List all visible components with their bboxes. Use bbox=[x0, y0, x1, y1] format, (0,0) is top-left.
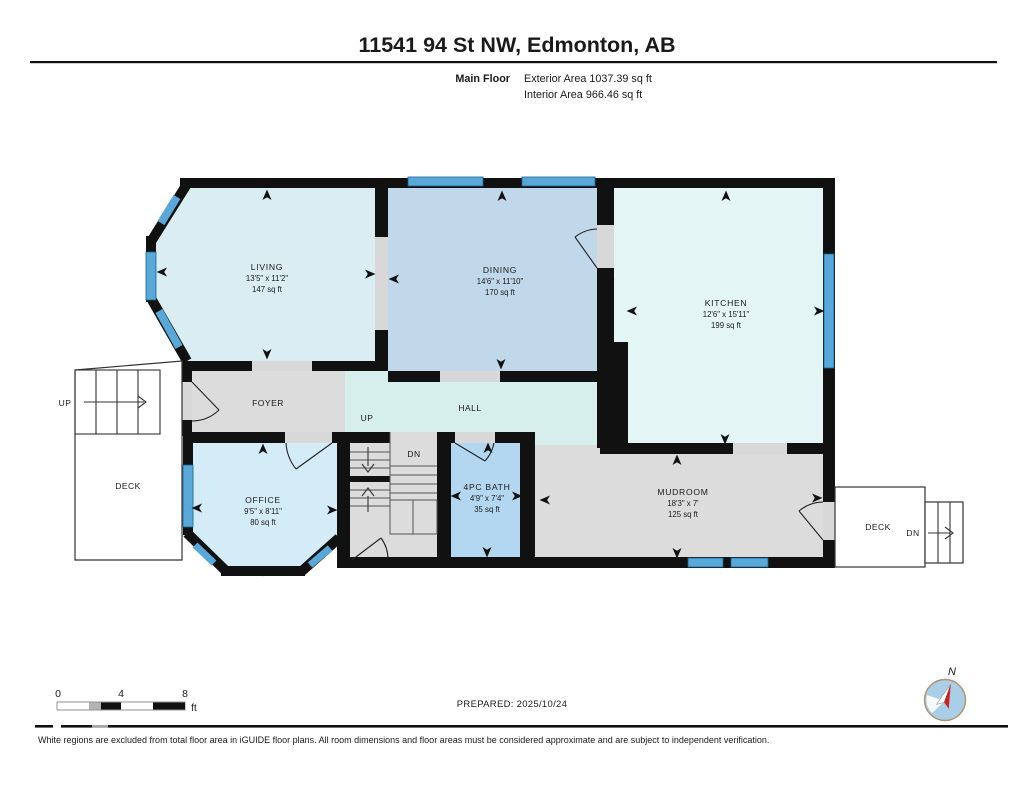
kitchen-dims: 12'6" x 15'11" bbox=[703, 310, 750, 319]
office-dims: 9'5" x 8'11" bbox=[244, 507, 282, 516]
exterior-area: Exterior Area 1037.39 sq ft bbox=[524, 73, 652, 85]
deck-right bbox=[835, 487, 963, 567]
dining-area: 170 sq ft bbox=[485, 288, 516, 297]
floor-label: Main Floor bbox=[455, 73, 510, 85]
living-dims: 13'5" x 11'2" bbox=[246, 274, 288, 283]
deck-left-label: DECK bbox=[115, 481, 141, 491]
header: 11541 94 St NW, Edmonton, AB Main Floor … bbox=[30, 33, 997, 101]
hall-up-label: UP bbox=[361, 413, 374, 423]
scale-tick-4: 4 bbox=[118, 688, 124, 700]
floorplan-canvas: 11541 94 St NW, Edmonton, AB Main Floor … bbox=[0, 0, 1024, 791]
deck-left-up-label: UP bbox=[59, 398, 72, 408]
kitchen-window bbox=[824, 254, 834, 368]
mudroom-label: MUDROOM bbox=[657, 487, 708, 497]
dining-label: DINING bbox=[483, 265, 517, 275]
bath-dims: 4'9" x 7'4" bbox=[470, 494, 504, 503]
hall-label: HALL bbox=[458, 403, 481, 413]
deck-right-label: DECK bbox=[865, 522, 891, 532]
office-window bbox=[183, 465, 193, 527]
mudroom-window-2 bbox=[731, 558, 768, 567]
deck-left bbox=[75, 361, 182, 560]
interior-area: Interior Area 966.46 sq ft bbox=[524, 89, 642, 101]
bath-area: 35 sq ft bbox=[474, 505, 500, 514]
prepared-date: PREPARED: 2025/10/24 bbox=[457, 699, 567, 710]
kitchen-label: KITCHEN bbox=[705, 298, 748, 308]
kitchen-area: 199 sq ft bbox=[711, 321, 742, 330]
living-label: LIVING bbox=[251, 262, 283, 272]
living-bay-window-mid bbox=[146, 252, 156, 300]
scale-bar: 0 4 8 ft bbox=[55, 688, 197, 714]
scale-unit: ft bbox=[191, 702, 197, 714]
page-title: 11541 94 St NW, Edmonton, AB bbox=[359, 33, 676, 57]
bath-label: 4PC BATH bbox=[464, 482, 511, 492]
floorplan-page: 11541 94 St NW, Edmonton, AB Main Floor … bbox=[0, 0, 1024, 791]
dining-window-1 bbox=[408, 177, 483, 186]
living-area: 147 sq ft bbox=[252, 285, 283, 294]
header-divider bbox=[30, 61, 997, 63]
mudroom-window-1 bbox=[688, 558, 723, 567]
disclaimer-text: White regions are excluded from total fl… bbox=[38, 735, 769, 745]
foyer-label: FOYER bbox=[252, 398, 284, 408]
footer-divider bbox=[35, 725, 1008, 728]
dining-window-2 bbox=[522, 177, 595, 186]
stairs-dn-label: DN bbox=[407, 449, 420, 459]
footer: White regions are excluded from total fl… bbox=[35, 724, 1008, 745]
scale-tick-8: 8 bbox=[182, 688, 188, 700]
deck-right-dn-label: DN bbox=[906, 528, 919, 538]
scale-tick-0: 0 bbox=[55, 688, 61, 700]
mudroom-area: 125 sq ft bbox=[668, 510, 699, 519]
dining-dims: 14'6" x 11'10" bbox=[477, 277, 524, 286]
office-area: 80 sq ft bbox=[250, 518, 276, 527]
compass-north-label: N bbox=[948, 666, 956, 678]
office-label: OFFICE bbox=[245, 495, 281, 505]
compass-rose: N bbox=[925, 666, 966, 721]
mudroom-dims: 18'3" x 7' bbox=[667, 499, 699, 508]
